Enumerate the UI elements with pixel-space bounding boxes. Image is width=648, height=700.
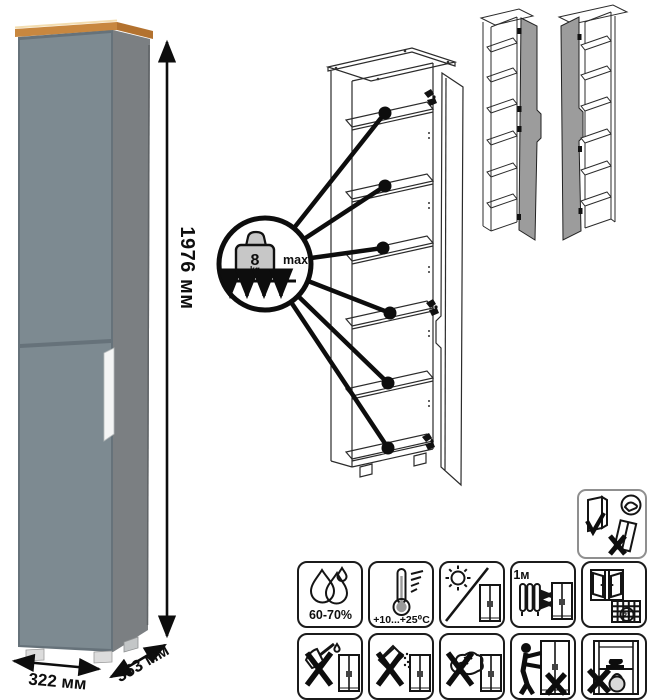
screw-dot xyxy=(404,50,407,53)
no-wet-wipe-icon xyxy=(439,633,505,700)
person-glyph xyxy=(521,643,541,694)
callout-dot xyxy=(382,377,395,390)
max-label: max xyxy=(283,253,308,267)
no-direct-sunlight-icon xyxy=(439,561,505,628)
axe-handle xyxy=(320,644,334,655)
foot xyxy=(360,464,372,477)
lower-door-panel xyxy=(20,343,111,649)
kettlebell-glyph xyxy=(609,676,624,691)
door-handle xyxy=(104,348,114,441)
humidity-label: 60-70% xyxy=(308,608,351,622)
calendar-day: 21 xyxy=(622,610,630,619)
foot xyxy=(26,649,44,661)
screw-dot xyxy=(447,61,450,64)
hand-detail-circle xyxy=(622,496,641,515)
no-sharp-tools-icon xyxy=(297,633,363,700)
temperature-range-icon: +10...+25⁰C xyxy=(368,561,434,628)
screw-dot xyxy=(377,78,380,81)
callout-dot xyxy=(379,180,392,193)
width-dimension-label: 322 мм xyxy=(28,670,88,694)
variant-door-panel xyxy=(519,18,541,240)
door-variants-diagram xyxy=(473,0,648,260)
callout-dot xyxy=(382,442,395,455)
load-limit-callout: 8 kg max xyxy=(219,218,311,310)
distance-label: ≥1м xyxy=(513,568,530,582)
calendar-glyph: 21 xyxy=(612,601,640,622)
cabinet-render: 1976 мм 322 мм 353 мм xyxy=(0,0,220,700)
product-sheet: 1976 мм 322 мм 353 мм xyxy=(0,0,648,700)
variant-door-panel xyxy=(561,17,583,240)
keep-upright-icon xyxy=(577,489,647,559)
variant-door-left xyxy=(559,5,627,240)
heat-source-distance-icon: ≥1м xyxy=(510,561,576,628)
cabinet-cutaway-diagram: 8 kg max xyxy=(200,15,475,515)
cabinet-side-panel xyxy=(113,30,150,652)
callout-dot xyxy=(377,242,390,255)
do-not-overload-icon xyxy=(581,633,647,700)
no-abrasive-cleaners-icon xyxy=(368,633,434,700)
callout-dot xyxy=(379,107,392,120)
cutaway-cabinet xyxy=(328,48,463,485)
variant-door-right xyxy=(481,9,541,240)
foot xyxy=(414,453,426,466)
foot xyxy=(94,651,112,663)
temperature-label: +10...+25⁰C xyxy=(373,614,430,626)
width-dimension-arrow xyxy=(14,661,99,669)
callout-dot xyxy=(384,307,397,320)
shelf-pin-dots xyxy=(428,132,430,407)
humidity-drops-icon: 60-70% xyxy=(297,561,363,628)
heat-lines xyxy=(411,571,423,592)
ventilation-calendar-icon: 21 xyxy=(581,561,647,628)
hand-glyph xyxy=(625,503,637,512)
do-not-push-icon xyxy=(510,633,576,700)
sun-glyph xyxy=(451,571,464,584)
x-mark xyxy=(378,653,402,685)
height-dimension-label: 1976 мм xyxy=(176,226,198,309)
upper-door-panel xyxy=(20,33,111,344)
open-door xyxy=(436,73,463,485)
top-board xyxy=(328,48,455,81)
droplet xyxy=(334,644,339,652)
depth-dimension-label: 353 мм xyxy=(112,640,172,686)
radiator-glyph xyxy=(520,584,540,616)
x-mark xyxy=(307,653,331,685)
bottom-left-edge xyxy=(331,461,352,467)
screw-dot xyxy=(335,67,338,70)
weight-unit: kg xyxy=(250,264,260,274)
